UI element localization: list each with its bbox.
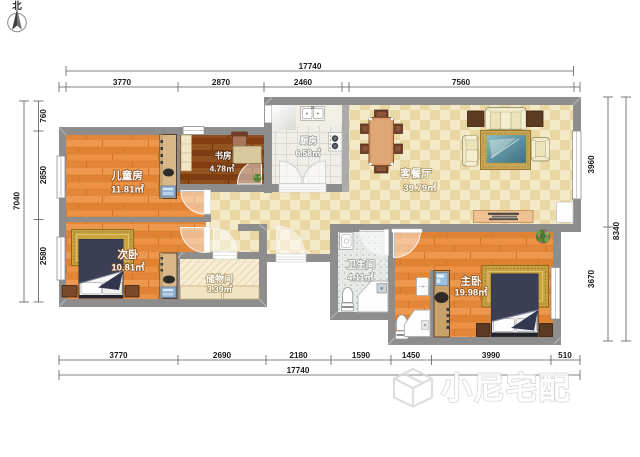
svg-text:3770: 3770 <box>113 78 132 87</box>
svg-text:次卧: 次卧 <box>118 248 139 261</box>
svg-text:3670: 3670 <box>587 269 596 288</box>
svg-text:17740: 17740 <box>299 62 322 71</box>
svg-text:1590: 1590 <box>352 351 371 360</box>
svg-text:3770: 3770 <box>109 351 128 360</box>
svg-text:17740: 17740 <box>287 366 310 375</box>
svg-text:3960: 3960 <box>587 155 596 174</box>
svg-text:4.11㎡: 4.11㎡ <box>347 272 373 283</box>
svg-text:客餐厅: 客餐厅 <box>399 167 432 180</box>
svg-text:2580: 2580 <box>39 246 48 265</box>
svg-text:儿童房: 儿童房 <box>110 169 143 182</box>
svg-text:10.81㎡: 10.81㎡ <box>111 262 145 274</box>
svg-text:39.79㎡: 39.79㎡ <box>403 182 437 194</box>
svg-text:760: 760 <box>39 109 48 123</box>
svg-text:2690: 2690 <box>213 351 232 360</box>
svg-text:510: 510 <box>558 351 572 360</box>
svg-text:3990: 3990 <box>482 351 501 360</box>
svg-text:8340: 8340 <box>612 221 621 240</box>
svg-text:2180: 2180 <box>289 351 308 360</box>
svg-text:7560: 7560 <box>452 78 471 87</box>
svg-text:19.98㎡: 19.98㎡ <box>454 287 488 299</box>
svg-text:6.58㎡: 6.58㎡ <box>295 148 321 158</box>
svg-text:2870: 2870 <box>212 78 231 87</box>
svg-text:厨房: 厨房 <box>300 136 317 146</box>
svg-text:7040: 7040 <box>13 191 22 210</box>
svg-text:小尼宅配: 小尼宅配 <box>441 371 571 406</box>
svg-text:主卧: 主卧 <box>461 275 482 288</box>
svg-text:11.81㎡: 11.81㎡ <box>111 184 144 196</box>
svg-text:1450: 1450 <box>402 351 421 360</box>
svg-text:书房: 书房 <box>214 151 231 161</box>
svg-text:2850: 2850 <box>39 165 48 184</box>
svg-text:卫生间: 卫生间 <box>347 259 376 271</box>
svg-text:2460: 2460 <box>294 78 313 87</box>
svg-text:4.78㎡: 4.78㎡ <box>209 164 235 174</box>
svg-text:储物间: 储物间 <box>206 273 233 284</box>
svg-text:3.39㎡: 3.39㎡ <box>207 284 233 294</box>
